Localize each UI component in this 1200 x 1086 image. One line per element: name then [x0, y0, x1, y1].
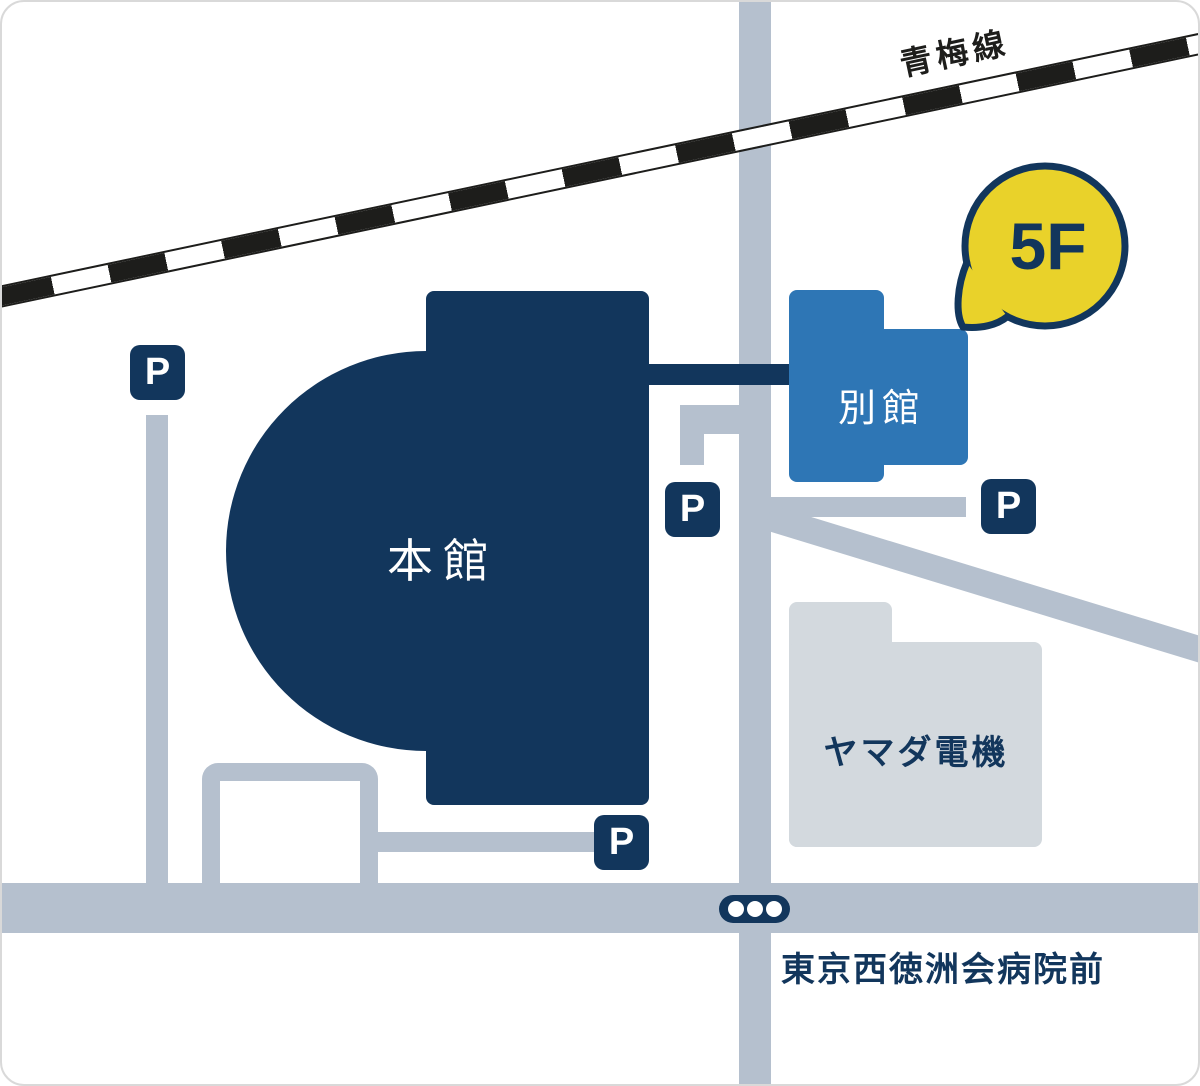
annex-building-label: 別館 — [789, 377, 969, 432]
parking-icon-west: P — [130, 345, 185, 400]
parking-icon-east: P — [981, 479, 1036, 534]
floor-badge-bubble: 5F — [952, 150, 1152, 345]
bus-stop-dot — [728, 901, 744, 917]
building-connector-bridge — [648, 364, 792, 385]
road-left-parking-access — [146, 415, 168, 883]
floor-badge-label: 5F — [1009, 209, 1086, 283]
road-stub-south-parking — [378, 832, 594, 852]
parking-icon-center: P — [665, 482, 720, 537]
bus-stop-name: 東京西徳洲会病院前 — [781, 942, 1105, 991]
bus-stop-dot — [766, 901, 782, 917]
parking-icon-south: P — [594, 815, 649, 870]
road-loop-southwest — [202, 763, 378, 903]
road-horizontal-bottom — [2, 883, 1200, 933]
access-map: 青梅線 本館 別館 ヤマダ電機 P P P P 東京西徳洲会病院前 5F — [0, 0, 1200, 1086]
bus-stop-dot — [747, 901, 763, 917]
road-elbow-vertical — [680, 405, 704, 465]
yamada-building-label: ヤマダ電機 — [790, 725, 1042, 774]
bus-stop-icon — [719, 895, 790, 923]
main-building-label: 本館 — [338, 525, 538, 591]
